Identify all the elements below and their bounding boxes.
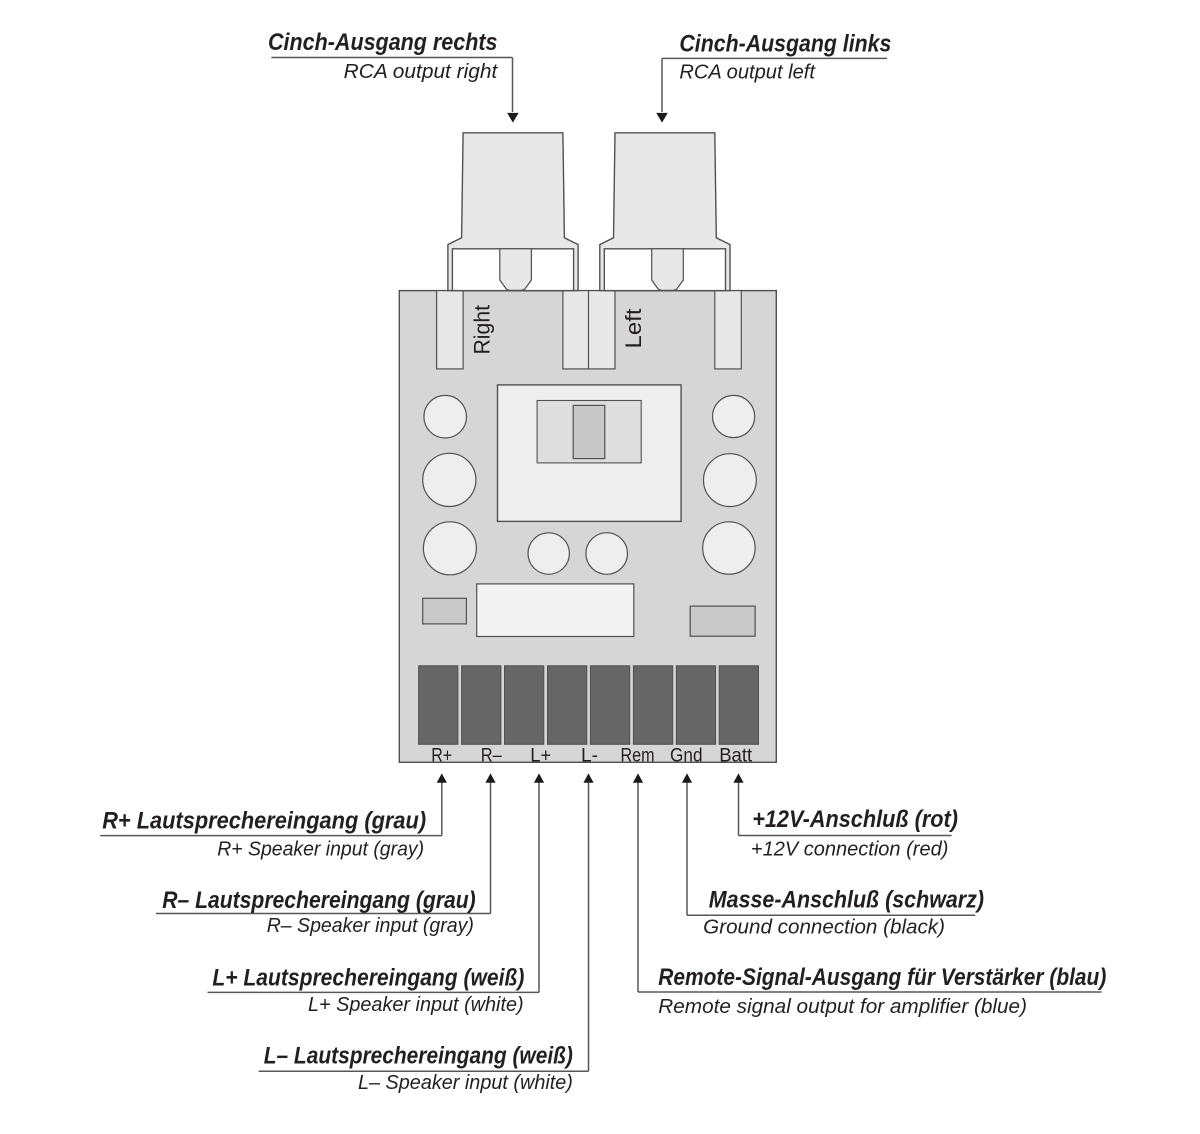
svg-text:Ground connection (black): Ground connection (black): [703, 916, 945, 939]
svg-text:RCA output right: RCA output right: [344, 60, 499, 83]
svg-text:R+ Speaker input (gray): R+ Speaker input (gray): [217, 838, 424, 861]
svg-text:L+ Speaker input (white): L+ Speaker input (white): [308, 993, 524, 1016]
svg-text:L– Lautsprechereingang (weiß): L– Lautsprechereingang (weiß): [264, 1042, 573, 1069]
svg-text:Batt: Batt: [719, 746, 753, 767]
svg-text:Gnd: Gnd: [670, 746, 703, 767]
svg-text:R– Speaker input (gray): R– Speaker input (gray): [267, 914, 474, 937]
svg-text:Rem: Rem: [621, 746, 655, 767]
svg-text:Right: Right: [470, 304, 495, 354]
svg-text:R– Lautsprechereingang (grau): R– Lautsprechereingang (grau): [162, 887, 476, 914]
svg-text:Cinch-Ausgang rechts: Cinch-Ausgang rechts: [268, 29, 498, 56]
svg-text:+12V-Anschluß (rot): +12V-Anschluß (rot): [752, 806, 958, 833]
svg-text:L-: L-: [581, 746, 598, 767]
svg-text:+12V connection (red): +12V connection (red): [751, 838, 949, 861]
svg-text:L+: L+: [530, 746, 551, 767]
svg-text:Cinch-Ausgang links: Cinch-Ausgang links: [679, 31, 891, 58]
svg-text:R–: R–: [481, 746, 502, 767]
svg-text:R+ Lautsprechereingang (grau): R+ Lautsprechereingang (grau): [102, 808, 426, 835]
svg-text:R+: R+: [431, 746, 452, 767]
svg-text:RCA output left: RCA output left: [679, 61, 816, 84]
svg-text:Masse-Anschluß (schwarz): Masse-Anschluß (schwarz): [709, 887, 984, 914]
svg-text:L+ Lautsprechereingang (weiß): L+ Lautsprechereingang (weiß): [212, 965, 524, 992]
svg-text:L– Speaker input (white): L– Speaker input (white): [358, 1071, 573, 1094]
svg-text:Remote-Signal-Ausgang für Vers: Remote-Signal-Ausgang für Verstärker (bl…: [658, 964, 1106, 991]
svg-text:Remote signal output for ampli: Remote signal output for amplifier (blue…: [658, 995, 1027, 1018]
svg-text:Left: Left: [621, 308, 646, 349]
